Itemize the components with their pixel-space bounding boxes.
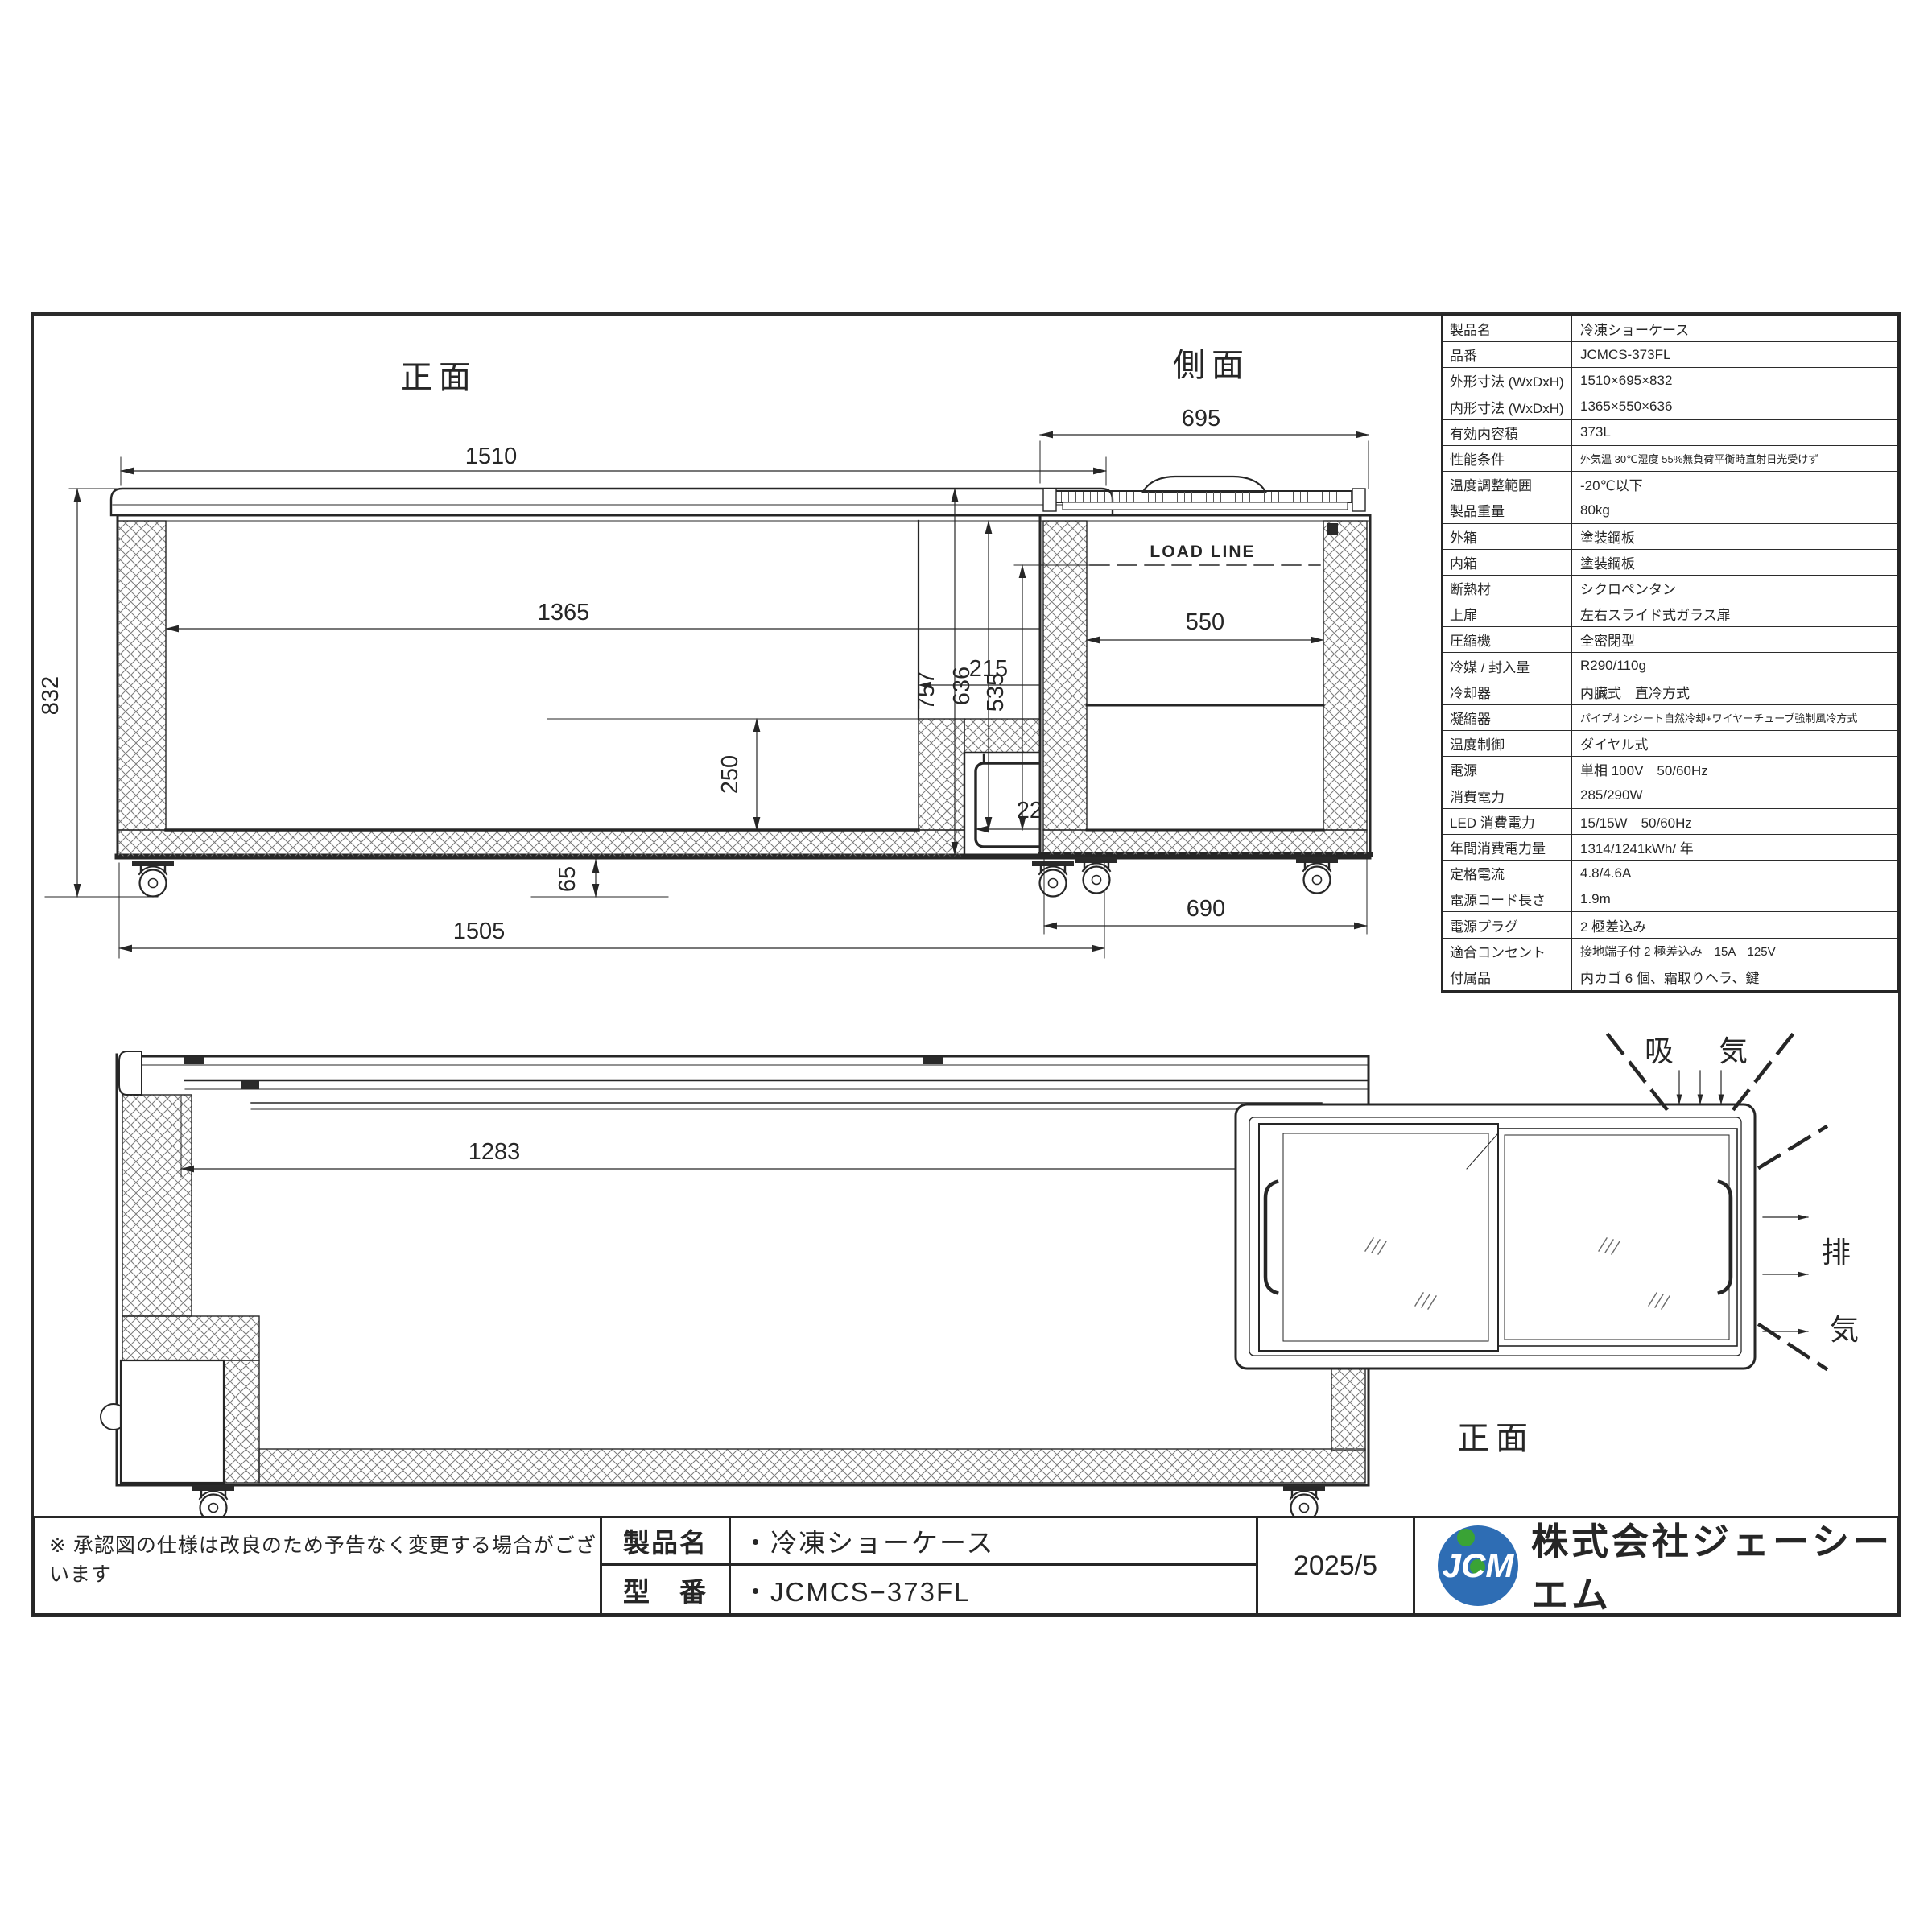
jcm-logo-icon: JCM [1438,1525,1518,1606]
drawing-sheet: 正面 1510 1365 215 [0,0,1932,1932]
front-dim-250-step: 250 [717,755,743,794]
front-view: 正面 1510 1365 215 [38,360,1184,958]
spec-table: 製品名冷凍ショーケース 品番JCMCS-373FL 外形寸法 (WxDxH)15… [1441,314,1900,993]
drawing-date: 2025/5 [1258,1518,1415,1613]
table-row: 電源単相 100V 50/60Hz [1443,757,1897,782]
exhaust-char-1: 排 [1822,1236,1859,1269]
table-row: 消費電力285/290W [1443,782,1897,808]
side-dim-535: 535 [983,673,1009,712]
exhaust-label: 排 気 [1822,1236,1875,1346]
table-row: 温度調整範囲-20℃以下 [1443,472,1897,497]
exhaust-char-2: 気 [1830,1313,1867,1346]
table-row: 年間消費電力量1314/1241kWh/ 年 [1443,835,1897,861]
side-dim-690: 690 [1187,896,1225,922]
jcm-logo-text: JCM [1438,1546,1518,1585]
company-name: 株式会社ジェーシーエム [1531,1513,1897,1619]
table-row: 内箱塗装鋼板 [1443,550,1897,576]
title-block: ※ 承認図の仕様は改良のため予告なく変更する場合がございます 製品名 ・冷凍ショ… [32,1516,1900,1616]
table-row: 圧縮機全密閉型 [1443,627,1897,653]
table-row: 上扉左右スライド式ガラス扉 [1443,601,1897,627]
product-name-value: ・冷凍ショーケース [731,1518,1256,1566]
front-dim-65: 65 [555,866,580,892]
side-view-title: 側面 [1173,348,1250,383]
table-row: 有効内容積373L [1443,420,1897,446]
table-row: 冷却器内臓式 直冷方式 [1443,679,1897,705]
table-row: 適合コンセント接地端子付 2 極差込み 15A 125V [1443,939,1897,964]
front-dim-1505: 1505 [453,919,506,944]
side-dim-757: 757 [914,671,939,710]
front-dim-1510: 1510 [465,444,518,469]
table-row: 電源コード長さ1.9m [1443,886,1897,912]
side-dim-695: 695 [1182,406,1220,431]
front-dim-832: 832 [38,676,64,715]
intake-label: 吸 気 [1645,1034,1756,1067]
table-row: 製品重量80kg [1443,497,1897,523]
load-line-label: LOAD LINE [1150,543,1255,561]
table-row: 冷媒 / 封入量R290/110g [1443,653,1897,679]
table-row: 付属品内カゴ 6 個、霜取りヘラ、鍵 [1443,964,1897,990]
table-row: LED 消費電力15/15W 50/60Hz [1443,809,1897,835]
table-row: 電源プラグ2 極差込み [1443,912,1897,938]
back-dim-1283: 1283 [469,1139,521,1165]
table-row: 定格電流4.8/4.6A [1443,861,1897,886]
product-name-label: 製品名 [602,1518,731,1566]
revision-note: ※ 承認図の仕様は改良のため予告なく変更する場合がございます [35,1518,602,1613]
table-row: 性能条件外気温 30℃湿度 55%無負荷平衡時直射日光受けず [1443,446,1897,472]
table-row: 断熱材シクロペンタン [1443,576,1897,601]
model-number-value: ・JCMCS−373FL [731,1566,1256,1613]
table-row: 外形寸法 (WxDxH)1510×695×832 [1443,368,1897,394]
model-number-label: 型 番 [602,1566,731,1613]
side-dim-550: 550 [1186,609,1224,635]
table-row: 品番JCMCS-373FL [1443,342,1897,368]
top-view-title: 正面 [1457,1421,1534,1456]
company-cell: JCM 株式会社ジェーシーエム [1415,1518,1897,1613]
back-view: 背面 1283 [101,1051,1368,1572]
side-dim-636: 636 [949,667,975,705]
front-dim-1365: 1365 [538,600,590,625]
table-row: 凝縮器パイプオンシート自然冷却+ワイヤーチューブ強制風冷方式 [1443,705,1897,731]
table-row: 温度制御ダイヤル式 [1443,731,1897,757]
table-row: 外箱塗装鋼板 [1443,524,1897,550]
front-view-title: 正面 [400,360,477,395]
table-row: 内形寸法 (WxDxH)1365×550×636 [1443,394,1897,420]
table-row: 製品名冷凍ショーケース [1443,316,1897,342]
